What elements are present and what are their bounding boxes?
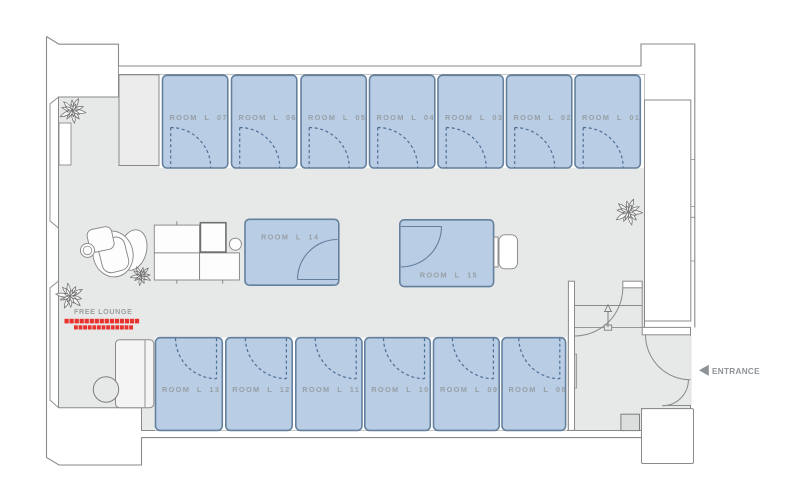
svg-text:ROOM L 07: ROOM L 07 — [170, 113, 228, 122]
svg-text:ROOM L 04: ROOM L 04 — [377, 113, 435, 122]
svg-text:ROOM L 05: ROOM L 05 — [308, 113, 366, 122]
svg-text:ROOM L 08: ROOM L 08 — [509, 385, 567, 394]
svg-text:ROOM L 12: ROOM L 12 — [232, 385, 290, 394]
svg-text:ROOM L 10: ROOM L 10 — [371, 385, 429, 394]
svg-text:ROOM L 06: ROOM L 06 — [239, 113, 297, 122]
svg-text:ROOM L 01: ROOM L 01 — [582, 113, 640, 122]
svg-text:ROOM L 09: ROOM L 09 — [440, 385, 498, 394]
svg-text:ROOM L 11: ROOM L 11 — [302, 385, 360, 394]
svg-text:FREE LOUNGE: FREE LOUNGE — [74, 307, 133, 316]
svg-text:ROOM L 14: ROOM L 14 — [261, 233, 319, 242]
svg-text:ROOM L 13: ROOM L 13 — [162, 385, 220, 394]
svg-text:ENTRANCE: ENTRANCE — [712, 367, 760, 376]
svg-text:ROOM L 03: ROOM L 03 — [445, 113, 503, 122]
svg-text:ROOM L 02: ROOM L 02 — [514, 113, 572, 122]
svg-text:ROOM L 15: ROOM L 15 — [420, 271, 478, 280]
